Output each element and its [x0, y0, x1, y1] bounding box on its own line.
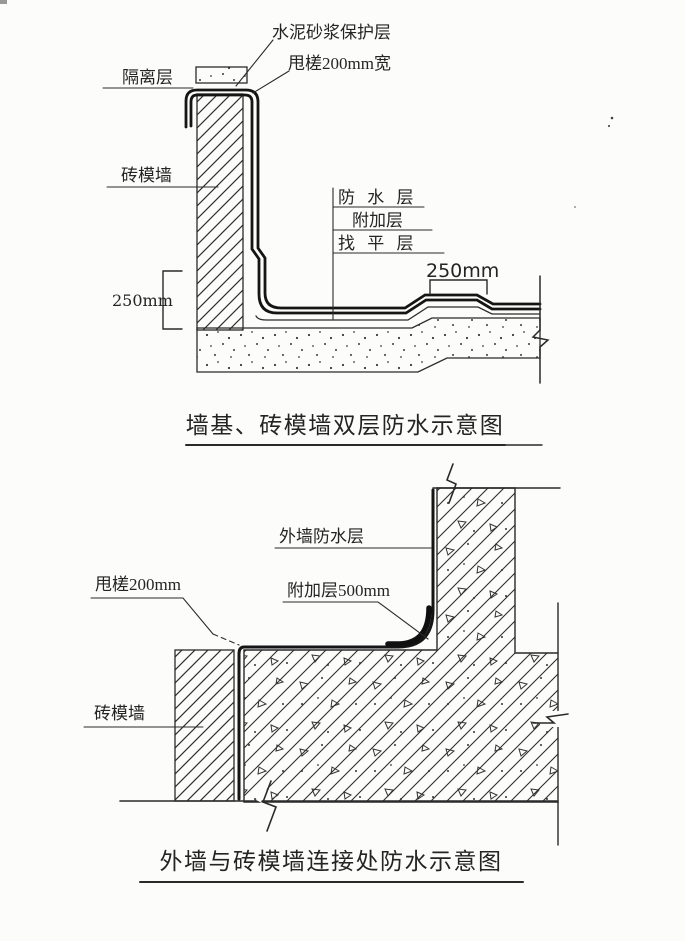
d1-title: 墙基、砖模墙双层防水示意图	[186, 413, 505, 438]
d1-label-isolation-layer: 隔离层	[122, 68, 173, 87]
d2-label-exterior-waterproof-layer: 外墙防水层	[279, 527, 364, 546]
d1-label-brick-form-wall: 砖模墙	[121, 166, 172, 185]
scanned-construction-drawing: 水泥砂浆保护层 甩槎200mm宽 隔离层 砖模墙 防 水 层 附加层 找 平 层…	[0, 0, 685, 941]
d1-concrete-slab	[197, 318, 540, 372]
d2-label-brick-form-wall: 砖模墙	[94, 704, 145, 723]
d1-dim-250mm-left: 250mm	[112, 291, 173, 310]
d2-title: 外墙与砖模墙连接处防水示意图	[160, 849, 503, 874]
diagram1: 水泥砂浆保护层 甩槎200mm宽 隔离层 砖模墙 防 水 层 附加层 找 平 层…	[103, 23, 548, 445]
d2-label-overlap-edge-200mm: 甩槎200mm	[95, 575, 181, 594]
d2-brick-form-wall-hatch	[175, 650, 234, 801]
d1-label-waterproof-layer: 防 水 层	[338, 188, 418, 207]
d2-label-additional-layer-500mm: 附加层500mm	[287, 581, 390, 600]
d1-dim-250mm-right: 250mm	[426, 260, 499, 282]
d1-brick-form-wall-hatch	[197, 94, 243, 330]
d1-cement-mortar-cap	[196, 67, 247, 83]
d1-label-leveling-layer: 找 平 层	[338, 234, 418, 253]
d1-label-additional-layer: 附加层	[352, 211, 403, 230]
d1-label-cement-mortar-protective-layer: 水泥砂浆保护层	[272, 23, 391, 42]
drawing-canvas: 水泥砂浆保护层 甩槎200mm宽 隔离层 砖模墙 防 水 层 附加层 找 平 层…	[0, 0, 685, 941]
diagram2: 外墙防水层 甩槎200mm 附加层500mm 砖模墙 外墙与砖模墙连接处防水示意…	[84, 445, 570, 882]
d1-label-overlap-edge-200mm: 甩槎200mm宽	[288, 54, 391, 73]
